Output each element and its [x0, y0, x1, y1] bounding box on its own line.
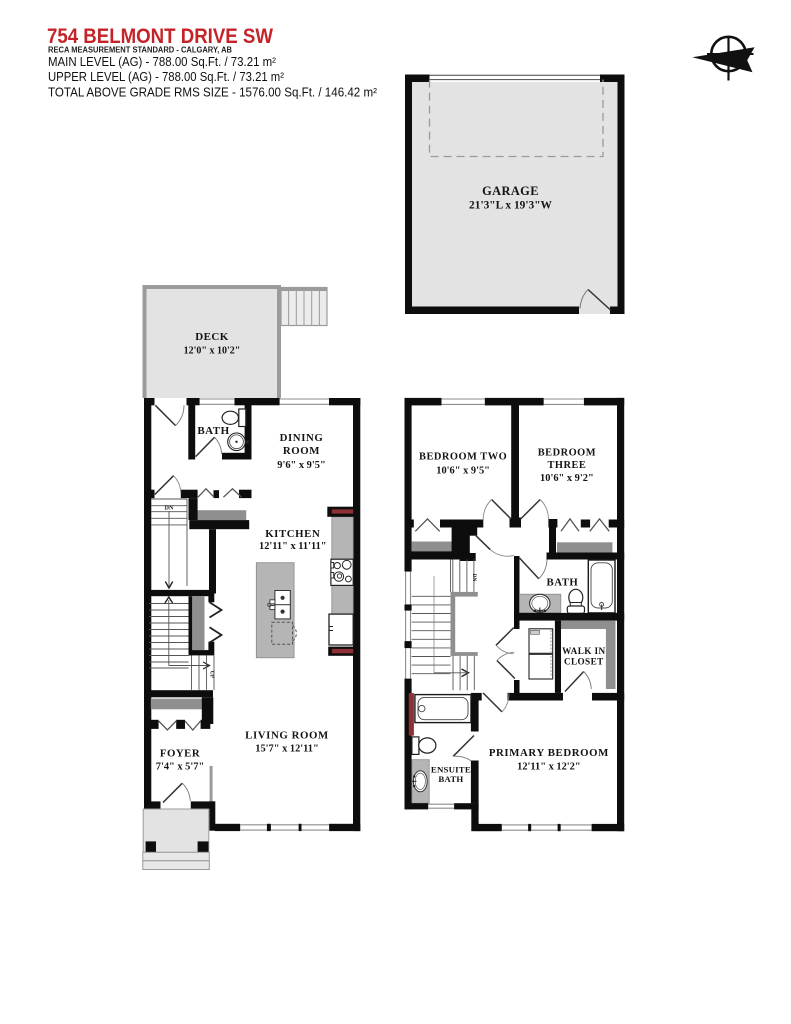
- svg-text:15'7" x 12'11": 15'7" x 12'11": [255, 744, 319, 755]
- svg-text:THREE: THREE: [547, 460, 586, 471]
- svg-text:MAIN LEVEL (AG) - 788.00 Sq.Ft: MAIN LEVEL (AG) - 788.00 Sq.Ft. / 73.21 …: [48, 54, 277, 69]
- svg-text:TOTAL ABOVE GRADE RMS SIZE - 1: TOTAL ABOVE GRADE RMS SIZE - 1576.00 Sq.…: [48, 84, 378, 99]
- svg-text:12'0" x 10'2": 12'0" x 10'2": [184, 345, 241, 356]
- svg-text:ROOM: ROOM: [283, 445, 320, 457]
- svg-text:CLOSET: CLOSET: [564, 656, 604, 666]
- svg-text:BATH: BATH: [197, 425, 229, 437]
- svg-text:10'6" x 9'2": 10'6" x 9'2": [540, 473, 594, 484]
- svg-text:PRIMARY BEDROOM: PRIMARY BEDROOM: [489, 747, 609, 759]
- svg-text:DN: DN: [471, 573, 477, 581]
- svg-text:LIVING ROOM: LIVING ROOM: [245, 729, 329, 741]
- svg-text:21'3"L x 19'3"W: 21'3"L x 19'3"W: [469, 200, 553, 212]
- svg-text:KITCHEN: KITCHEN: [265, 528, 320, 540]
- svg-text:DINING: DINING: [280, 432, 324, 444]
- svg-text:RECA MEASUREMENT STANDARD - CA: RECA MEASUREMENT STANDARD - CALGARY, AB: [48, 45, 232, 55]
- svg-text:ENSUITE: ENSUITE: [431, 764, 471, 774]
- svg-text:GARAGE: GARAGE: [482, 184, 539, 198]
- svg-text:10'6" x 9'5": 10'6" x 9'5": [436, 465, 490, 476]
- svg-text:BATH: BATH: [438, 774, 463, 784]
- svg-text:UPPER LEVEL (AG) - 788.00 Sq.F: UPPER LEVEL (AG) - 788.00 Sq.Ft. / 73.21…: [48, 69, 285, 84]
- svg-text:WALK IN: WALK IN: [562, 646, 605, 656]
- svg-text:BATH: BATH: [547, 577, 579, 589]
- svg-text:12'11" x 12'2": 12'11" x 12'2": [517, 762, 581, 773]
- svg-text:FOYER: FOYER: [160, 747, 200, 759]
- svg-text:DECK: DECK: [195, 331, 228, 343]
- svg-text:12'11" x 11'11": 12'11" x 11'11": [259, 541, 327, 552]
- svg-text:9'6" x 9'5": 9'6" x 9'5": [277, 460, 325, 471]
- svg-text:DN: DN: [165, 506, 174, 512]
- svg-text:7'4" x 5'7": 7'4" x 5'7": [156, 761, 204, 772]
- svg-text:BEDROOM TWO: BEDROOM TWO: [419, 452, 507, 463]
- svg-text:BEDROOM: BEDROOM: [538, 448, 596, 459]
- svg-text:UP: UP: [209, 671, 215, 679]
